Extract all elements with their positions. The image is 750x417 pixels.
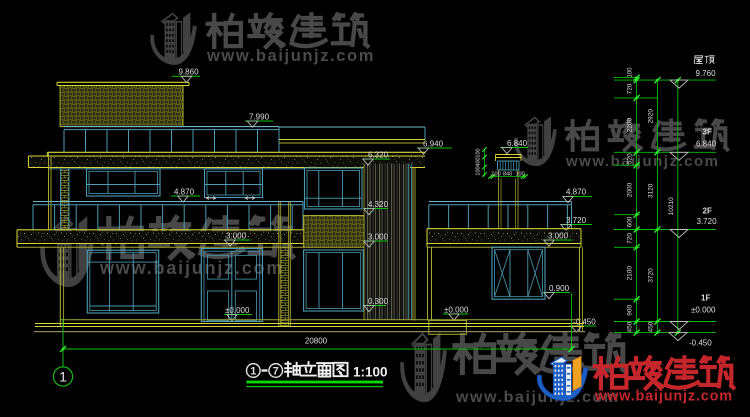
svg-text:100: 100	[476, 166, 482, 175]
svg-text:100: 100	[628, 67, 634, 78]
svg-text:3.720: 3.720	[697, 217, 718, 226]
svg-text:900: 900	[627, 304, 634, 315]
svg-text:450: 450	[627, 321, 634, 332]
svg-text:7.990: 7.990	[249, 113, 270, 122]
svg-text:840: 840	[503, 172, 512, 178]
svg-text:9.760: 9.760	[696, 69, 717, 78]
svg-text:4.870: 4.870	[174, 188, 195, 197]
svg-text:0.300: 0.300	[368, 297, 389, 306]
svg-text:7: 7	[273, 366, 279, 378]
svg-text:6.840: 6.840	[507, 139, 528, 148]
svg-text:100: 100	[492, 172, 501, 178]
svg-text:2000: 2000	[627, 182, 634, 197]
svg-text:3.000: 3.000	[548, 232, 569, 241]
svg-text:720: 720	[627, 83, 634, 94]
svg-text:3.000: 3.000	[226, 232, 247, 241]
svg-text:600: 600	[627, 216, 634, 227]
svg-text:4.870: 4.870	[566, 188, 587, 197]
svg-text:400: 400	[476, 157, 482, 166]
svg-text:100: 100	[476, 148, 482, 157]
svg-text:-0.450: -0.450	[573, 318, 596, 327]
svg-text:3120: 3120	[647, 183, 654, 198]
svg-text:100: 100	[516, 172, 525, 178]
svg-text:www.baijunjz.com: www.baijunjz.com	[565, 153, 719, 170]
svg-text:3.000: 3.000	[368, 233, 389, 242]
svg-text:www.baijunjz.com: www.baijunjz.com	[594, 389, 733, 405]
svg-text:520: 520	[627, 153, 634, 164]
svg-text:0.900: 0.900	[549, 284, 570, 293]
svg-text:6.320: 6.320	[368, 151, 389, 160]
svg-text:6.940: 6.940	[423, 140, 444, 149]
svg-text:3F: 3F	[703, 128, 712, 137]
svg-text:3.720: 3.720	[566, 216, 587, 225]
svg-text:1:100: 1:100	[353, 365, 388, 380]
svg-text:20800: 20800	[305, 337, 328, 346]
svg-text:1F: 1F	[701, 294, 710, 303]
svg-text:-0.450: -0.450	[689, 339, 712, 348]
svg-text:4.320: 4.320	[368, 200, 389, 209]
svg-text:1: 1	[59, 369, 67, 385]
svg-text:www.baijunjz.com: www.baijunjz.com	[206, 47, 375, 65]
svg-text:9.860: 9.860	[179, 68, 200, 77]
svg-text:2100: 2100	[627, 266, 634, 281]
svg-text:2F: 2F	[703, 207, 712, 216]
svg-text:6.840: 6.840	[696, 140, 717, 149]
svg-text:±0.000: ±0.000	[444, 306, 469, 315]
svg-text:±0.000: ±0.000	[691, 306, 716, 315]
svg-text:1: 1	[250, 366, 256, 378]
svg-text:10210: 10210	[668, 197, 675, 215]
svg-text:720: 720	[627, 233, 634, 244]
svg-text:±0.000: ±0.000	[225, 306, 250, 315]
svg-text:2920: 2920	[647, 109, 654, 124]
svg-text:2200: 2200	[627, 117, 634, 132]
svg-text:3720: 3720	[647, 268, 654, 283]
svg-text:450: 450	[647, 321, 654, 332]
